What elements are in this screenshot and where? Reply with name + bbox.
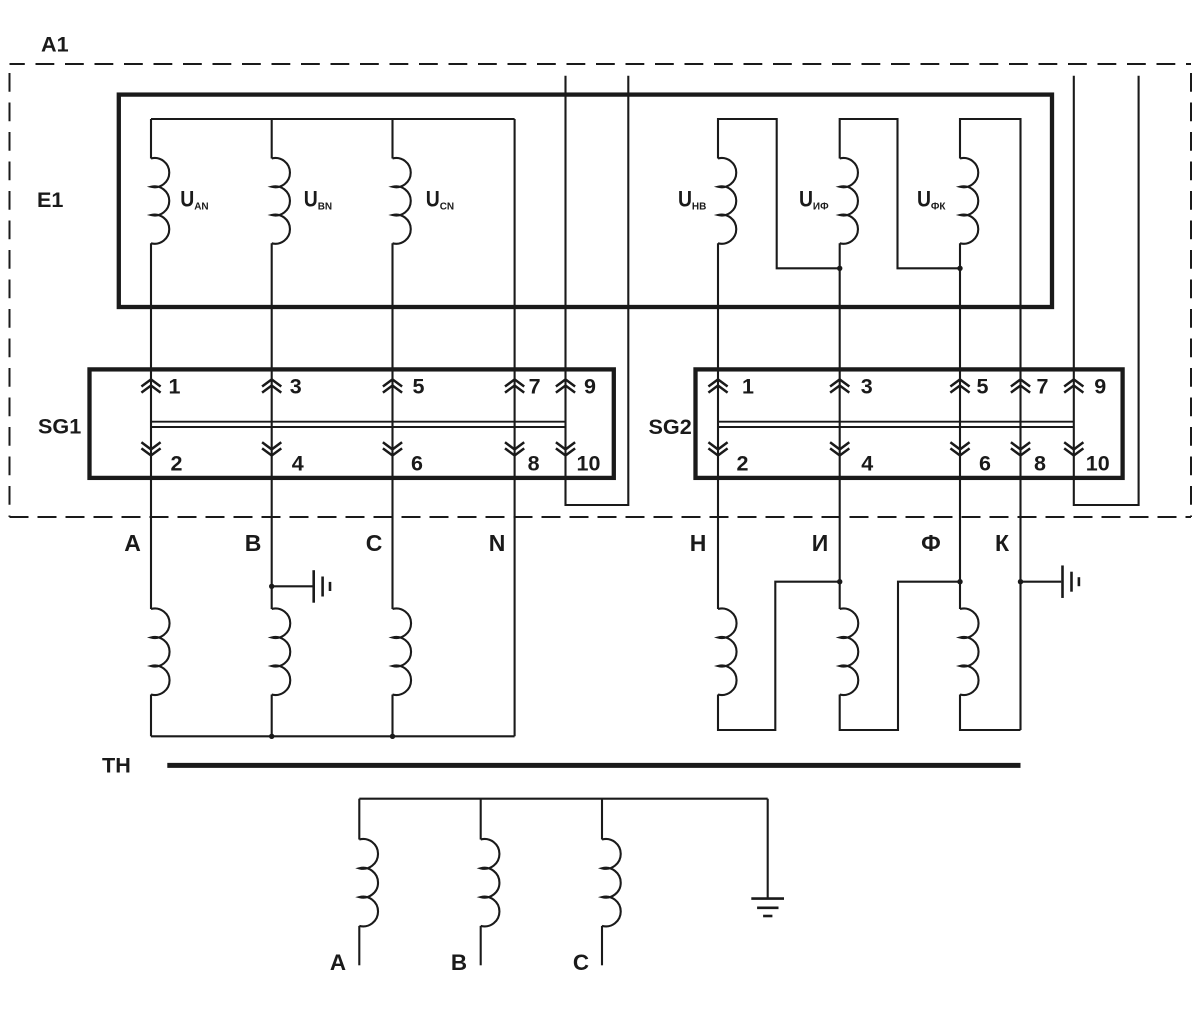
svg-text:ИФ: ИФ [813,202,829,213]
svg-text:6: 6 [411,451,423,475]
svg-text:5: 5 [413,375,425,399]
svg-text:U: U [426,186,440,211]
svg-text:7: 7 [529,375,541,399]
svg-text:Ф: Ф [921,530,941,556]
svg-text:C: C [366,530,383,556]
svg-text:4: 4 [292,451,304,475]
svg-text:С: С [573,950,589,975]
svg-text:BN: BN [318,202,332,213]
svg-text:A1: A1 [41,32,69,57]
svg-text:ФК: ФК [931,202,947,213]
svg-text:B: B [245,530,262,556]
svg-text:A: A [124,530,141,556]
svg-text:А: А [330,950,346,975]
svg-text:3: 3 [290,375,302,399]
svg-text:8: 8 [1034,451,1046,475]
svg-text:9: 9 [1094,375,1106,399]
svg-text:Н: Н [690,530,707,556]
svg-text:U: U [678,186,692,211]
svg-text:1: 1 [742,375,754,399]
svg-text:8: 8 [528,451,540,475]
svg-text:U: U [917,186,931,211]
svg-text:N: N [489,530,506,556]
svg-text:10: 10 [577,451,601,475]
svg-text:SG1: SG1 [38,414,81,439]
svg-text:SG2: SG2 [649,414,692,439]
svg-text:И: И [812,530,829,556]
svg-text:AN: AN [194,202,208,213]
svg-text:CN: CN [440,202,454,213]
svg-text:6: 6 [979,451,991,475]
svg-text:U: U [799,186,813,211]
svg-text:9: 9 [584,375,596,399]
svg-text:E1: E1 [37,187,63,212]
svg-text:U: U [180,186,194,211]
svg-text:4: 4 [861,451,873,475]
svg-text:К: К [995,530,1010,556]
svg-text:2: 2 [737,451,749,475]
svg-text:U: U [304,186,318,211]
svg-text:5: 5 [977,375,989,399]
svg-text:7: 7 [1037,375,1049,399]
svg-text:10: 10 [1086,451,1110,475]
svg-text:2: 2 [171,451,183,475]
svg-text:НВ: НВ [692,202,706,213]
svg-text:ТН: ТН [102,753,131,778]
svg-text:3: 3 [861,375,873,399]
svg-text:1: 1 [169,375,181,399]
svg-text:В: В [451,950,467,975]
